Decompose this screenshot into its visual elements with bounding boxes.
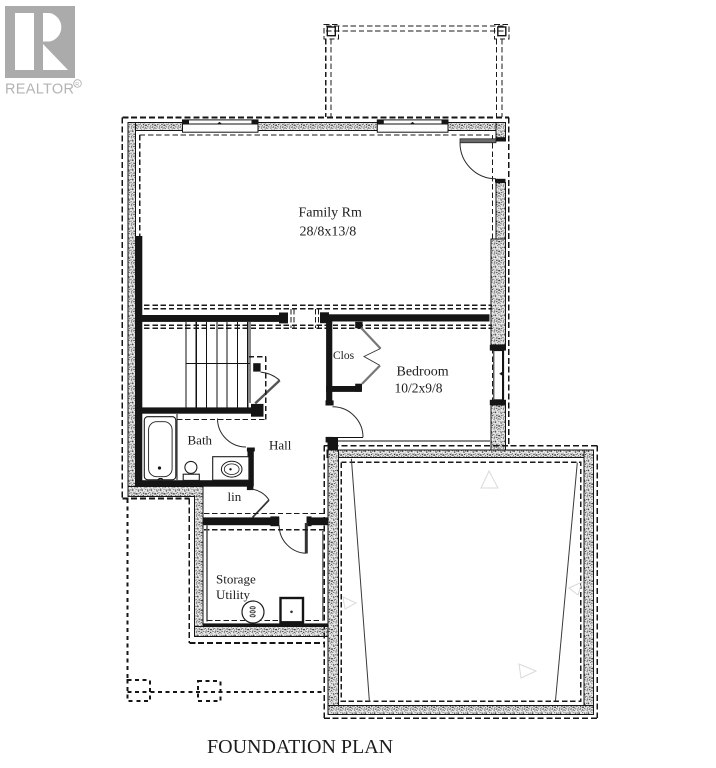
svg-text:Bath: Bath (188, 433, 213, 448)
svg-text:R: R (75, 82, 79, 88)
svg-text:Storage: Storage (216, 572, 256, 587)
svg-text:Hall: Hall (269, 438, 292, 453)
svg-text:Family Rm: Family Rm (299, 206, 363, 221)
svg-text:Clos: Clos (333, 350, 355, 362)
svg-text:10/2x9/8: 10/2x9/8 (395, 380, 443, 395)
svg-text:Bedroom: Bedroom (397, 365, 449, 380)
svg-text:28/8x13/8: 28/8x13/8 (300, 225, 357, 240)
svg-text:Utility: Utility (216, 587, 250, 602)
svg-text:REALTOR: REALTOR (5, 82, 74, 98)
svg-text:FOUNDATION PLAN: FOUNDATION PLAN (207, 736, 393, 758)
svg-text:lin: lin (228, 489, 242, 504)
